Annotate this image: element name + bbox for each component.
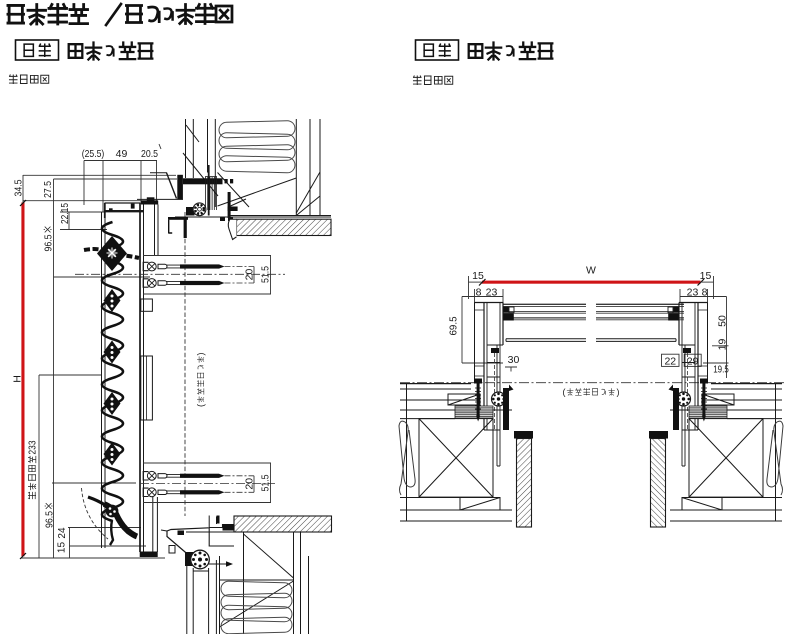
svg-text:96.5: 96.5 xyxy=(43,234,55,251)
svg-text:15: 15 xyxy=(700,270,712,282)
svg-text:20.5: 20.5 xyxy=(141,148,158,160)
svg-text:51.5: 51.5 xyxy=(260,474,272,491)
svg-text:20: 20 xyxy=(244,478,256,490)
svg-text:): ) xyxy=(617,387,620,397)
svg-text:): ) xyxy=(196,353,206,356)
svg-text:15: 15 xyxy=(57,542,68,554)
svg-text:69.5: 69.5 xyxy=(448,316,460,335)
svg-text:(: ( xyxy=(563,387,566,397)
svg-text:W: W xyxy=(586,265,596,277)
svg-text:30: 30 xyxy=(508,354,520,366)
svg-text:(: ( xyxy=(196,404,206,407)
svg-text:29: 29 xyxy=(687,356,699,368)
svg-text:27.5: 27.5 xyxy=(42,181,54,198)
svg-text:20: 20 xyxy=(244,269,256,281)
svg-text:24: 24 xyxy=(57,527,68,539)
svg-text:22: 22 xyxy=(664,356,676,368)
svg-text:51.5: 51.5 xyxy=(260,266,272,283)
svg-text:49: 49 xyxy=(116,148,128,160)
svg-text:15: 15 xyxy=(472,270,484,282)
svg-text:(25.5): (25.5) xyxy=(82,148,105,160)
svg-text:233: 233 xyxy=(28,440,39,454)
